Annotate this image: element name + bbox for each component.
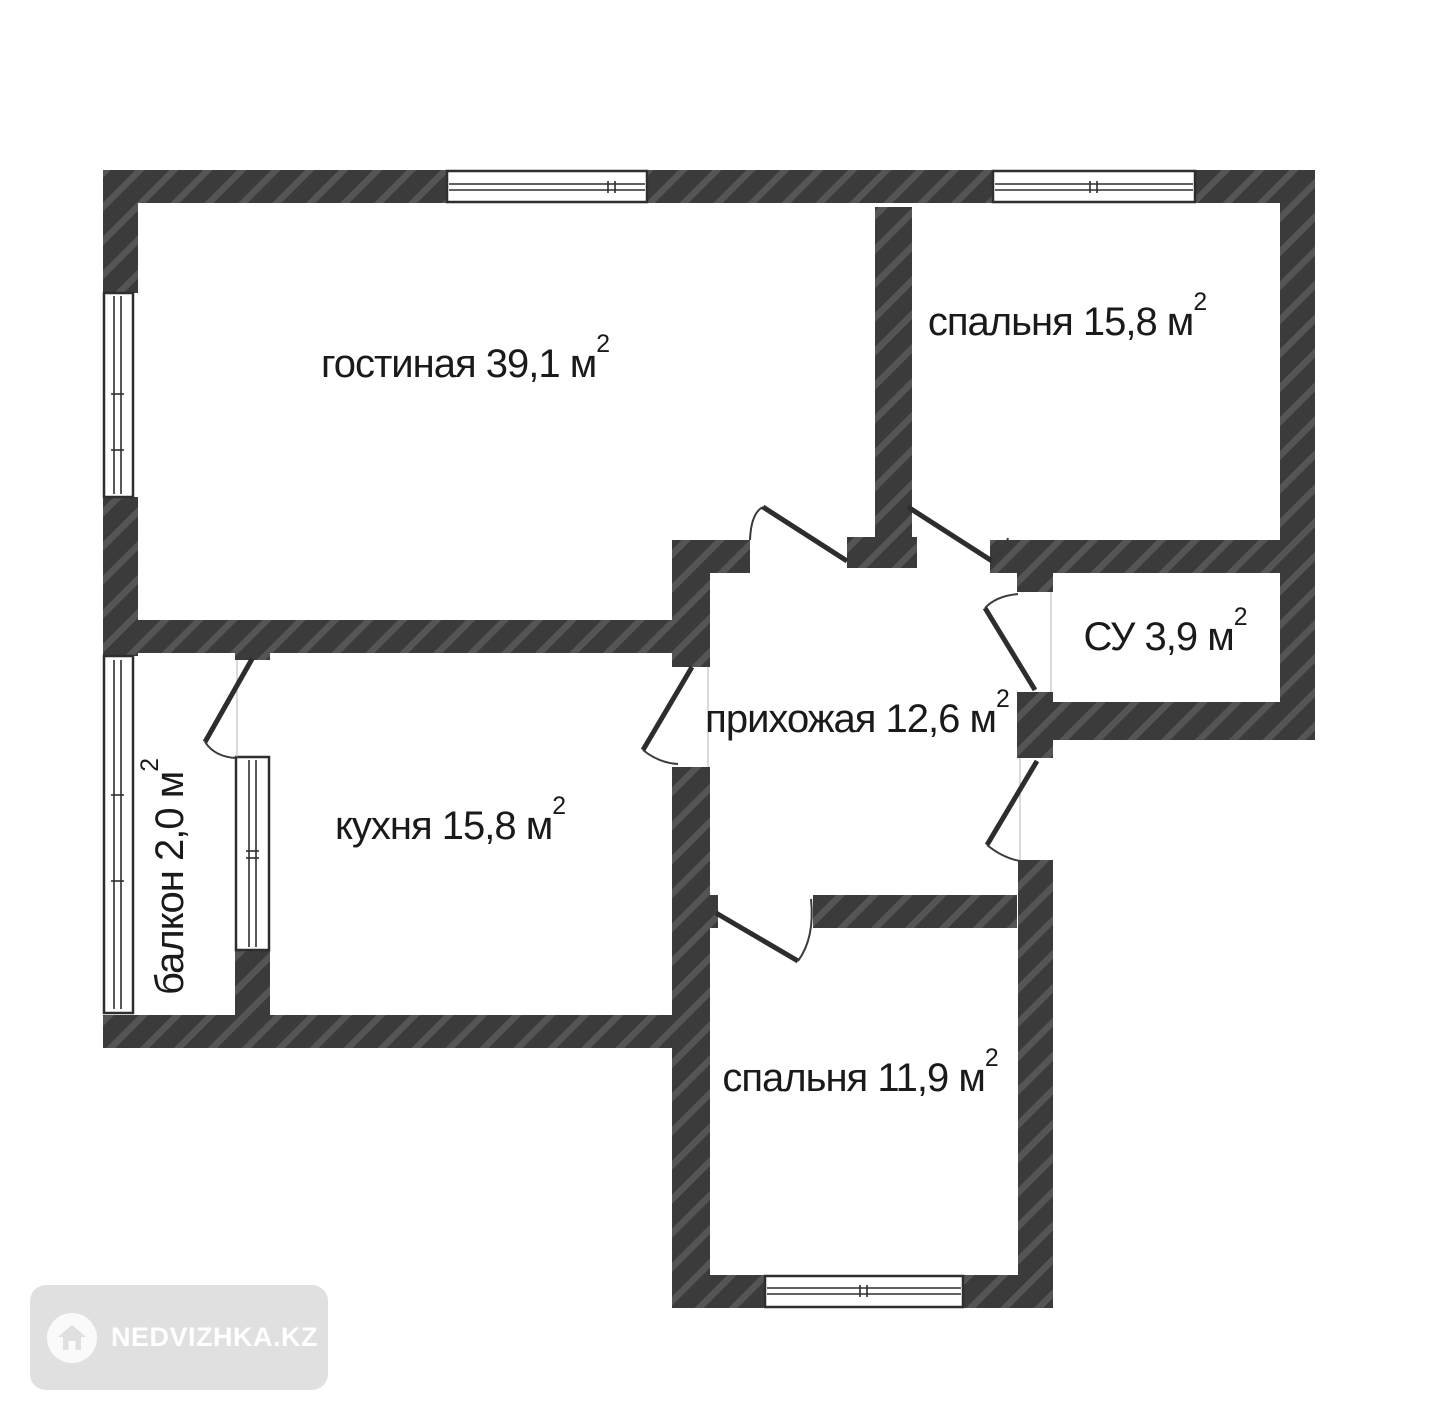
- door-entrance: [987, 761, 1037, 861]
- wall-segment: [1280, 170, 1315, 740]
- wall-segment: [647, 170, 993, 203]
- wall-segment: [875, 207, 912, 537]
- door-bathroom: [985, 594, 1035, 690]
- room-label-balcony-text: балкон 2,0 м: [148, 772, 192, 995]
- door-kitchen: [643, 667, 692, 764]
- room-label-living: гостиная 39,1 м2: [321, 344, 609, 384]
- room-label-balcony-sup: 2: [137, 759, 164, 772]
- wall-segment: [1017, 692, 1053, 758]
- wall-segment: [847, 537, 917, 568]
- wall-segment: [235, 653, 270, 660]
- room-label-hallway: прихожая 12,6 м2: [705, 699, 1009, 739]
- room-label-kitchen: кухня 15,8 м2: [335, 806, 565, 846]
- wall-segment: [1017, 573, 1053, 592]
- room-label-bathroom: СУ 3,9 м2: [1083, 617, 1246, 657]
- door-living: [750, 507, 847, 561]
- room-label-bedroom-bottom: спальня 11,9 м2: [722, 1058, 997, 1098]
- watermark-badge: NEDVIZHKA.KZ: [30, 1285, 328, 1390]
- wall-segment: [103, 497, 138, 656]
- room-label-bathroom-text: СУ 3,9 м: [1083, 615, 1233, 659]
- wall-segment: [672, 1275, 765, 1308]
- window-balcony-kitchen: [236, 757, 269, 950]
- room-label-hallway-sup: 2: [996, 686, 1009, 713]
- wall-segment: [138, 620, 672, 653]
- room-label-kitchen-text: кухня 15,8 м: [335, 804, 552, 848]
- wall-segment: [235, 950, 270, 1015]
- room-label-living-sup: 2: [596, 331, 609, 358]
- wall-segment: [963, 1275, 1053, 1308]
- wall-segment: [710, 895, 718, 928]
- window-balcony-glazing: [104, 656, 133, 1013]
- wall-segment: [672, 540, 750, 573]
- house-icon: [55, 1321, 89, 1355]
- window-living-left: [104, 293, 133, 497]
- wall-segment: [1018, 860, 1053, 1308]
- room-label-bedroom-top-sup: 2: [1193, 289, 1206, 316]
- room-label-bedroom-top-text: спальня 15,8 м: [928, 300, 1193, 344]
- floor-plan: гостиная 39,1 м2 спальня 15,8 м2 СУ 3,9 …: [0, 0, 1440, 1427]
- room-label-living-text: гостиная 39,1 м: [321, 342, 596, 386]
- wall-segment: [103, 1015, 710, 1048]
- window-bedroom-top: [993, 171, 1195, 202]
- room-label-bedroom-bottom-text: спальня 11,9 м: [722, 1056, 984, 1100]
- wall-segment: [103, 203, 138, 293]
- room-label-hallway-text: прихожая 12,6 м: [705, 697, 996, 741]
- window-bedroom-bottom: [765, 1276, 963, 1307]
- wall-segment: [1053, 702, 1315, 740]
- room-label-bedroom-bottom-sup: 2: [985, 1045, 998, 1072]
- wall-segment: [103, 170, 447, 203]
- room-label-balcony: балкон 2,0 м2: [150, 759, 190, 995]
- window-living-top: [447, 171, 647, 202]
- wall-segment: [813, 895, 1017, 928]
- door-bedroom-bottom: [716, 899, 812, 961]
- wall-segment: [672, 767, 710, 1308]
- watermark-text: NEDVIZHKA.KZ: [111, 1324, 318, 1351]
- door-balcony: [205, 659, 252, 758]
- watermark-house-icon: [47, 1313, 97, 1363]
- room-label-kitchen-sup: 2: [552, 793, 565, 820]
- room-label-bedroom-top: спальня 15,8 м2: [928, 302, 1206, 342]
- wall-segment: [990, 540, 1285, 573]
- room-label-bathroom-sup: 2: [1234, 604, 1247, 631]
